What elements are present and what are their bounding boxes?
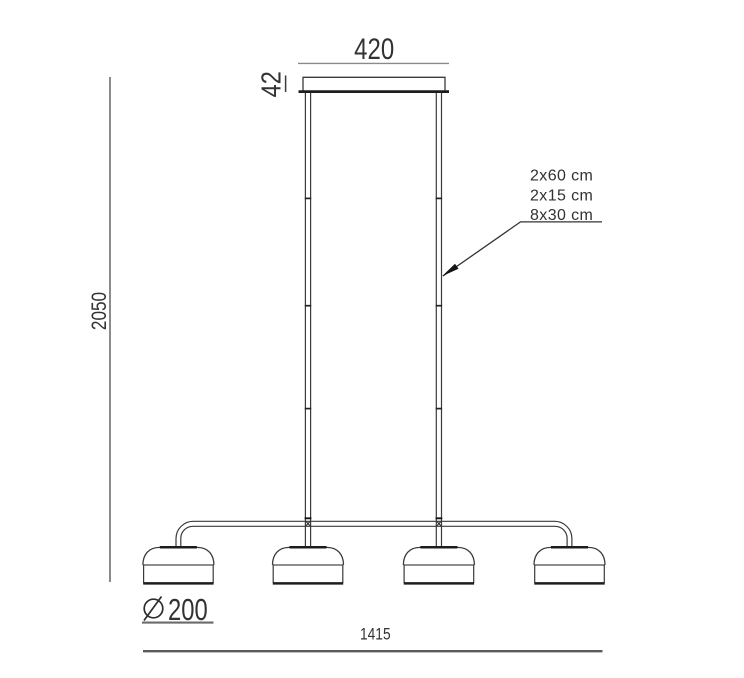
svg-text:420: 420 [354,31,394,65]
svg-text:2x60 cm: 2x60 cm [530,168,593,185]
svg-text:1415: 1415 [360,625,391,643]
svg-text:42: 42 [256,71,286,97]
svg-text:200: 200 [168,592,208,627]
svg-text:2x15 cm: 2x15 cm [530,187,593,204]
svg-text:2050: 2050 [88,292,111,330]
